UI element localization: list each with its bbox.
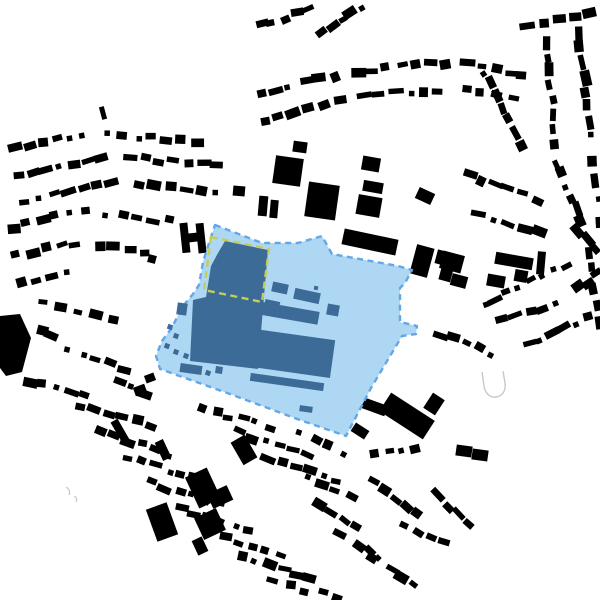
map-canvas (0, 0, 600, 600)
figure-ground-map (0, 0, 600, 600)
